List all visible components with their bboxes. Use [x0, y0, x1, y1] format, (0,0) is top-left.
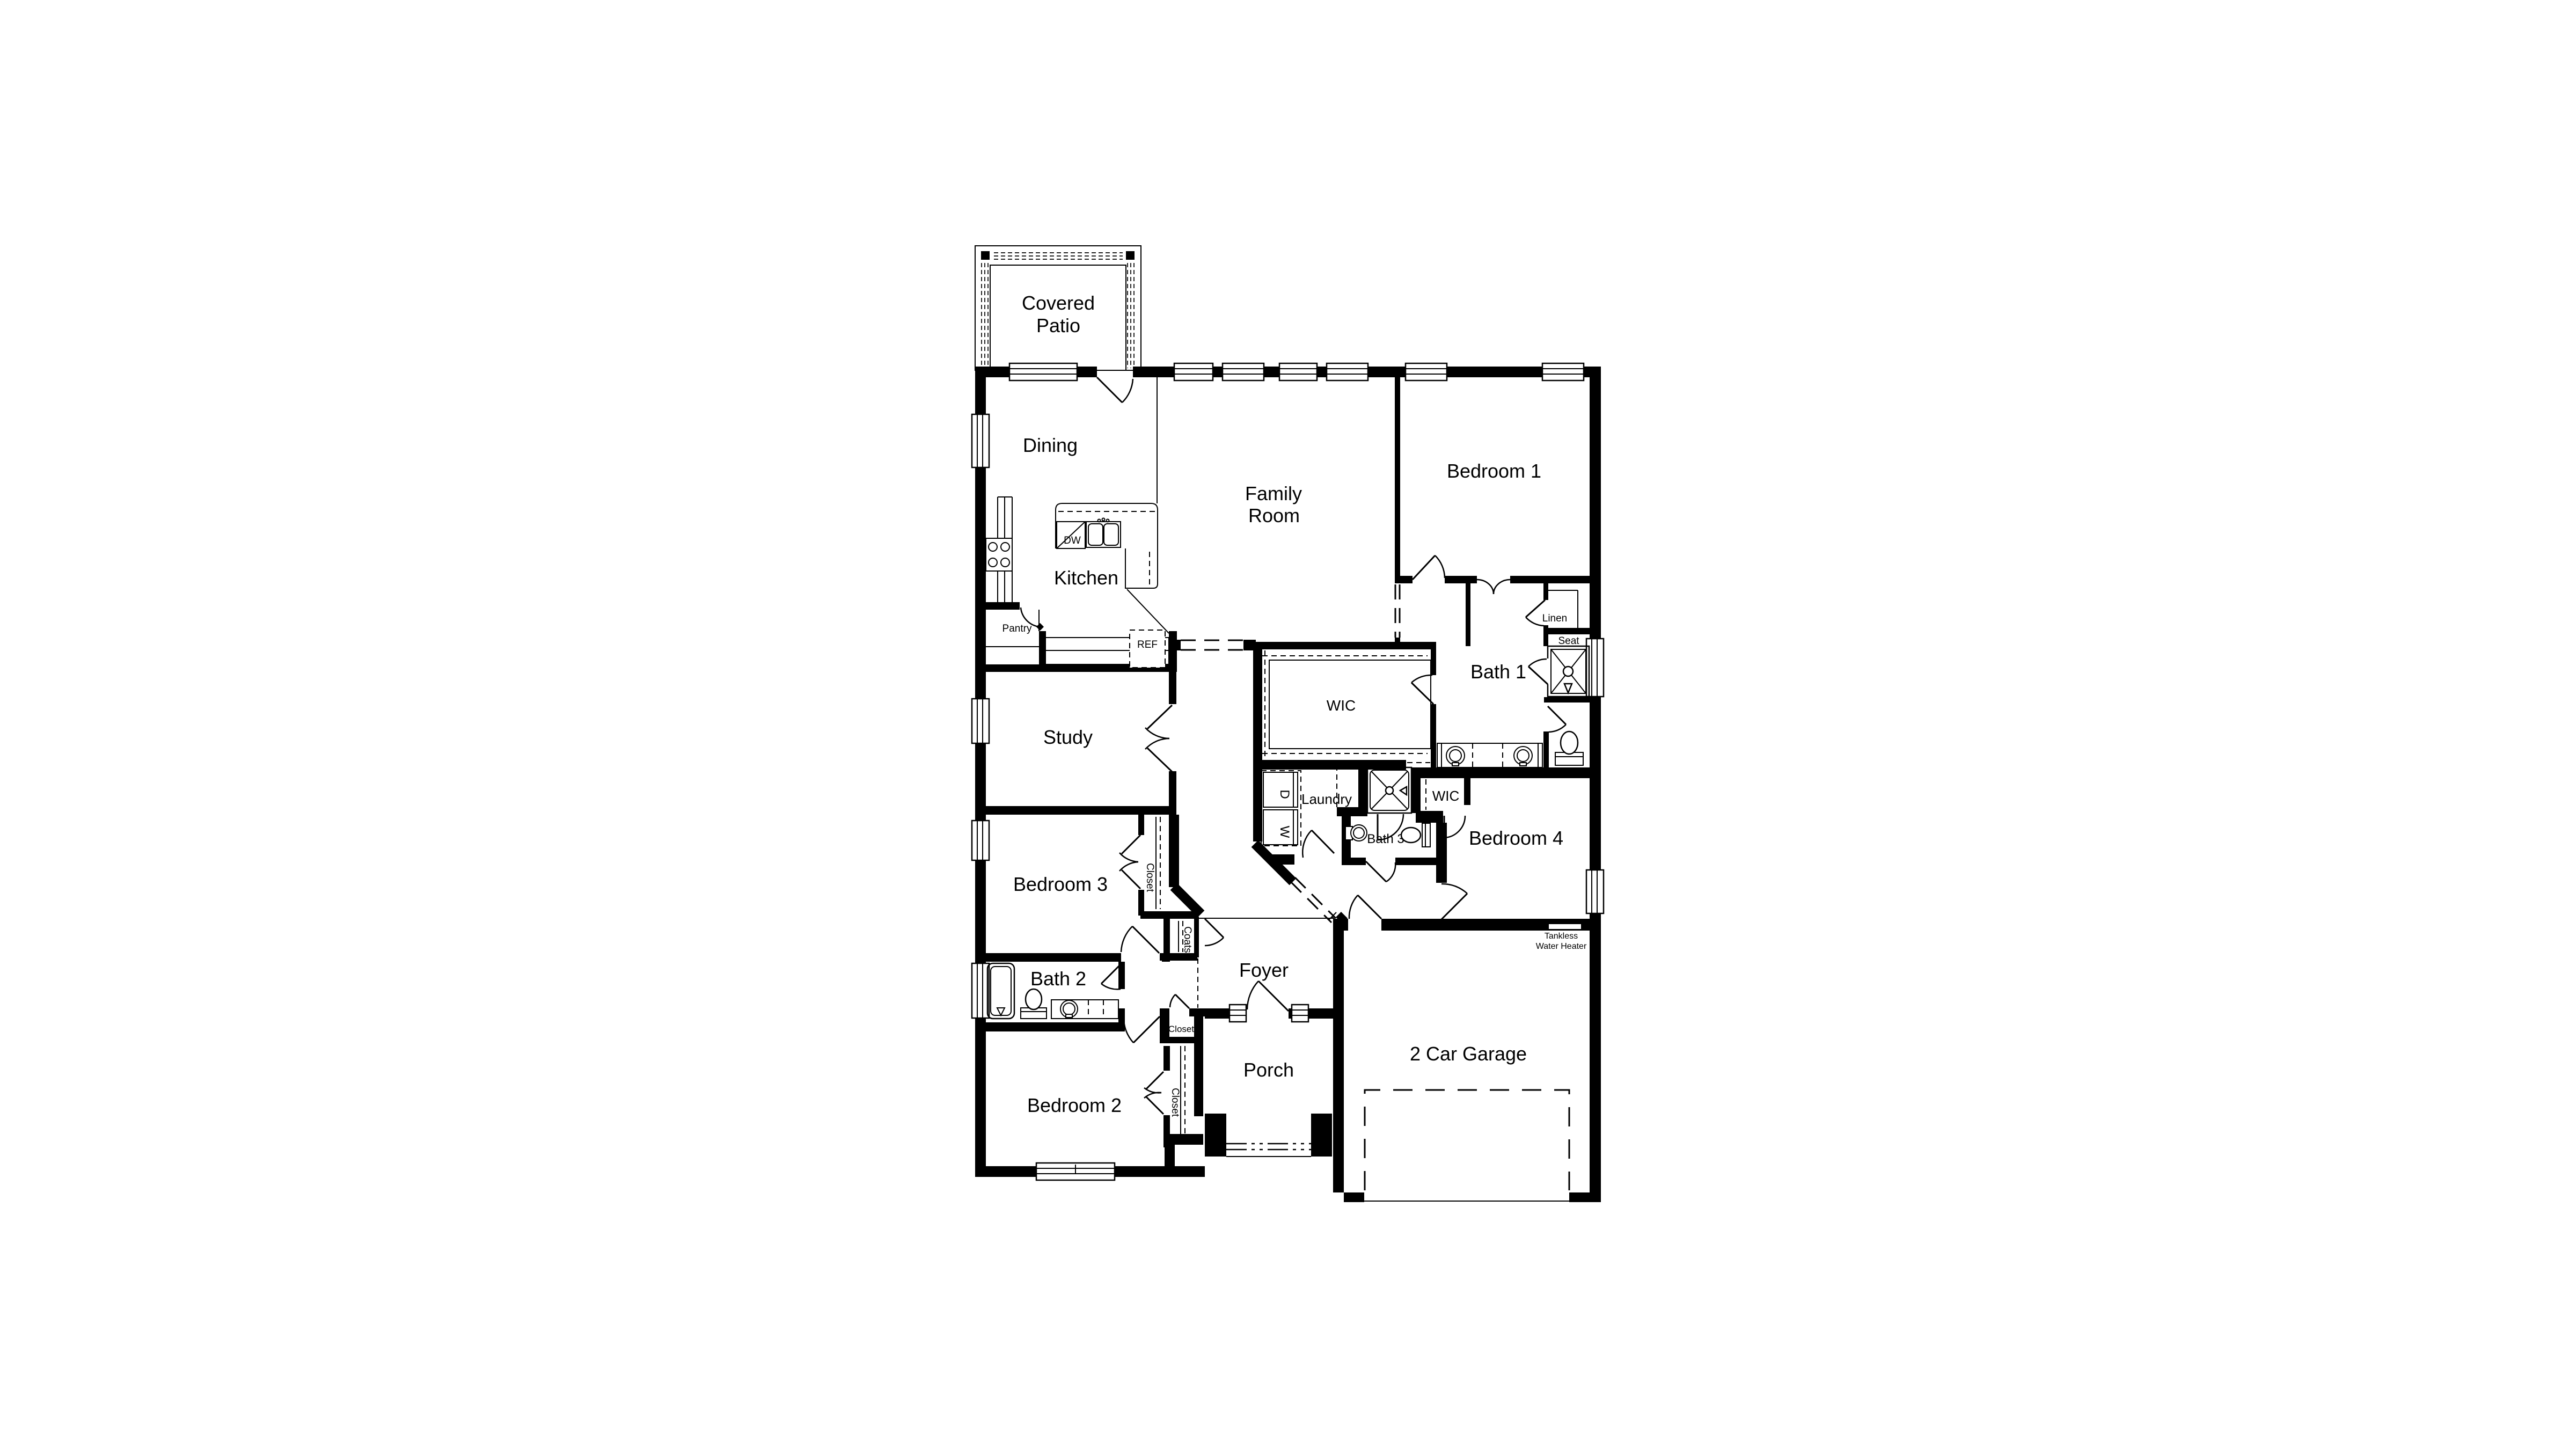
- svg-text:Bath 3: Bath 3: [1367, 832, 1404, 846]
- svg-text:D: D: [1277, 789, 1292, 799]
- svg-text:Porch: Porch: [1243, 1059, 1294, 1081]
- svg-text:Dining: Dining: [1023, 434, 1078, 456]
- svg-text:Room: Room: [1248, 504, 1300, 526]
- svg-text:W: W: [1277, 826, 1292, 838]
- svg-text:Pantry: Pantry: [1002, 623, 1032, 634]
- svg-text:DW: DW: [1064, 535, 1081, 546]
- svg-text:Closet: Closet: [1168, 1024, 1194, 1034]
- svg-text:Coats: Coats: [1182, 926, 1193, 953]
- svg-text:Seat: Seat: [1558, 635, 1579, 647]
- svg-text:Bedroom 4: Bedroom 4: [1469, 827, 1563, 849]
- svg-text:Bedroom 1: Bedroom 1: [1447, 460, 1541, 482]
- svg-text:Covered: Covered: [1022, 292, 1095, 314]
- svg-text:REF: REF: [1137, 639, 1158, 650]
- svg-text:Bath 1: Bath 1: [1470, 661, 1526, 683]
- svg-text:Tankless: Tankless: [1545, 932, 1578, 941]
- svg-text:Linen: Linen: [1542, 613, 1568, 624]
- svg-text:Laundry: Laundry: [1301, 791, 1352, 807]
- svg-text:Water Heater: Water Heater: [1536, 942, 1587, 951]
- svg-text:Study: Study: [1043, 726, 1093, 748]
- svg-text:Foyer: Foyer: [1239, 959, 1289, 981]
- svg-text:Kitchen: Kitchen: [1054, 567, 1118, 589]
- svg-text:WIC: WIC: [1432, 788, 1460, 804]
- svg-text:Closet: Closet: [1169, 1088, 1181, 1117]
- svg-text:Family: Family: [1245, 482, 1302, 504]
- svg-text:2 Car Garage: 2 Car Garage: [1410, 1043, 1527, 1065]
- svg-text:Bedroom 3: Bedroom 3: [1013, 873, 1108, 895]
- svg-text:Patio: Patio: [1036, 314, 1080, 336]
- svg-text:Closet: Closet: [1144, 863, 1155, 892]
- svg-text:Bath 2: Bath 2: [1030, 968, 1086, 990]
- svg-text:Bedroom 2: Bedroom 2: [1027, 1094, 1122, 1116]
- svg-text:WIC: WIC: [1327, 697, 1356, 714]
